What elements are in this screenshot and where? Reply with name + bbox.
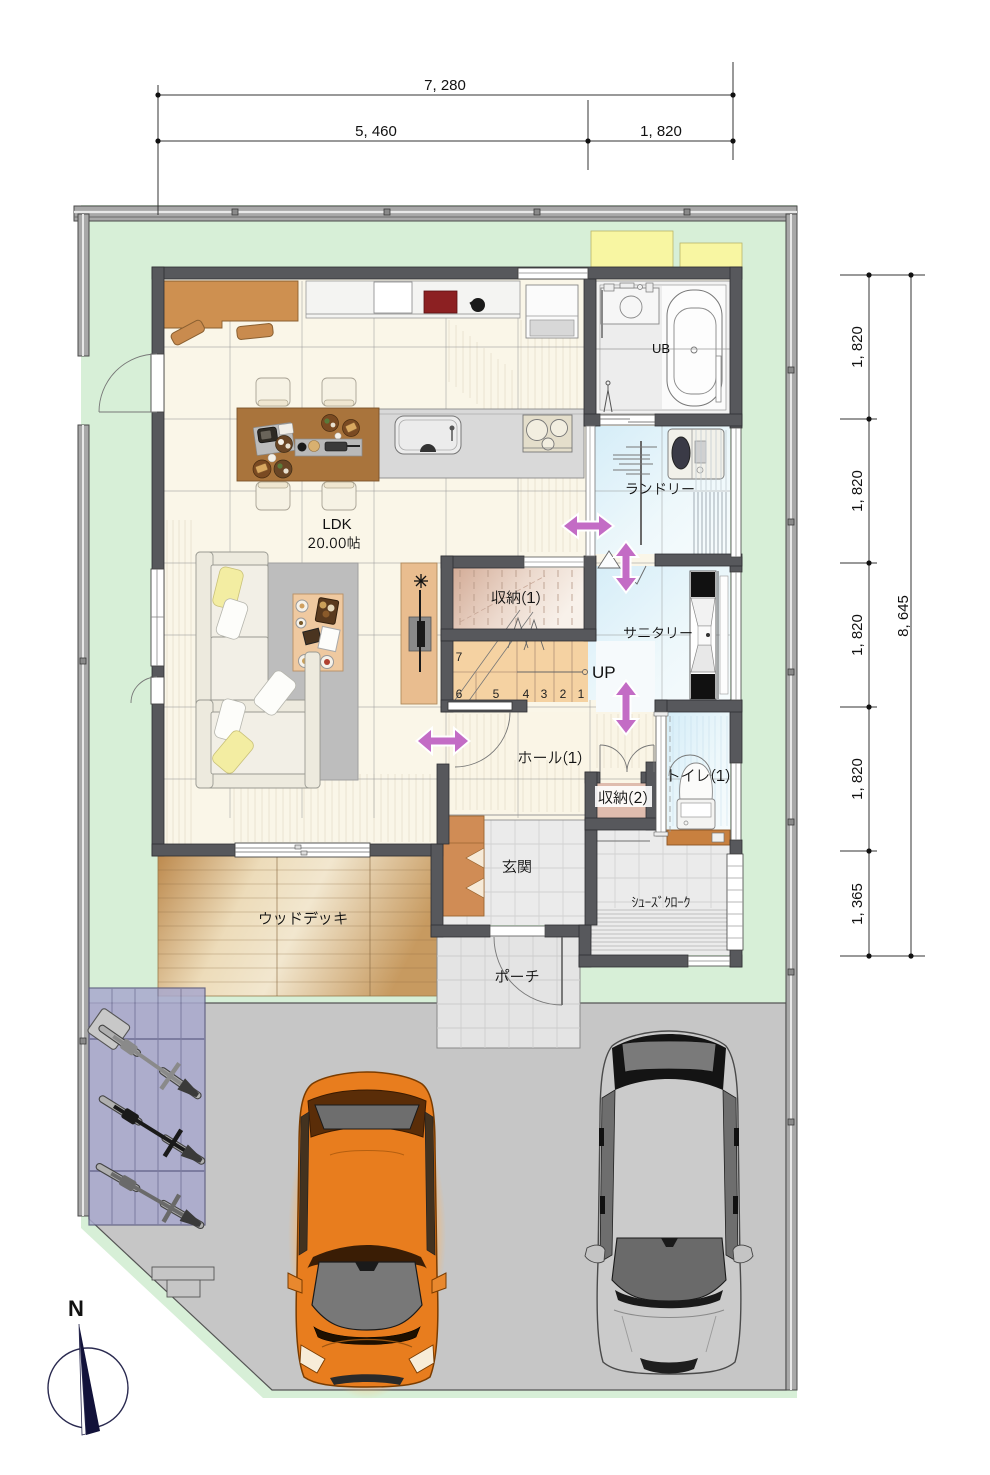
- svg-text:5, 460: 5, 460: [355, 123, 397, 140]
- svg-text:3: 3: [541, 687, 548, 701]
- svg-text:1: 1: [578, 687, 585, 701]
- svg-text:LDK: LDK: [322, 516, 351, 533]
- svg-text:4: 4: [523, 687, 530, 701]
- svg-text:6: 6: [456, 687, 463, 701]
- svg-text:8, 645: 8, 645: [895, 595, 912, 637]
- svg-text:1, 820: 1, 820: [640, 123, 682, 140]
- svg-text:1, 820: 1, 820: [849, 470, 866, 512]
- svg-text:7, 280: 7, 280: [424, 77, 466, 94]
- svg-text:UB: UB: [652, 341, 670, 356]
- svg-text:7: 7: [456, 650, 463, 664]
- svg-text:2: 2: [560, 687, 567, 701]
- svg-text:UP: UP: [592, 663, 616, 682]
- svg-text:5: 5: [493, 687, 500, 701]
- svg-text:1, 820: 1, 820: [849, 326, 866, 368]
- svg-text:N: N: [68, 1296, 84, 1321]
- svg-text:1, 820: 1, 820: [849, 614, 866, 656]
- svg-text:1, 820: 1, 820: [849, 758, 866, 800]
- svg-text:1, 365: 1, 365: [849, 883, 866, 925]
